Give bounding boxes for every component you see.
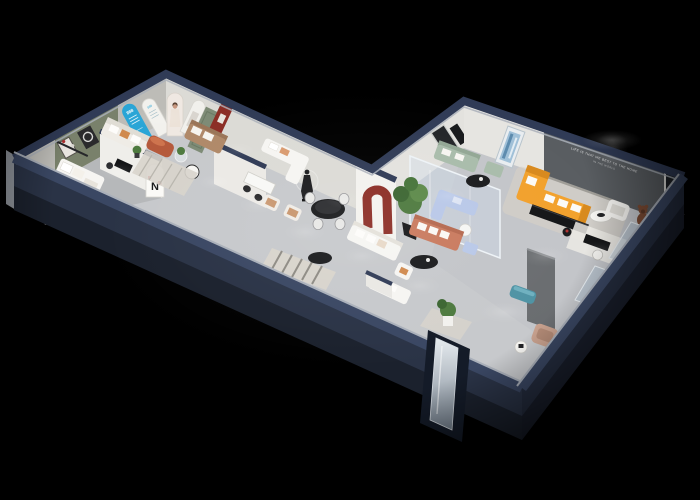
lighting — [0, 0, 700, 500]
screenshot-canvas: LIFE IS THAT WE BEST TO THE HOME IN THE … — [0, 0, 700, 500]
floorplan-render: LIFE IS THAT WE BEST TO THE HOME IN THE … — [0, 0, 700, 500]
vignette — [0, 0, 700, 500]
